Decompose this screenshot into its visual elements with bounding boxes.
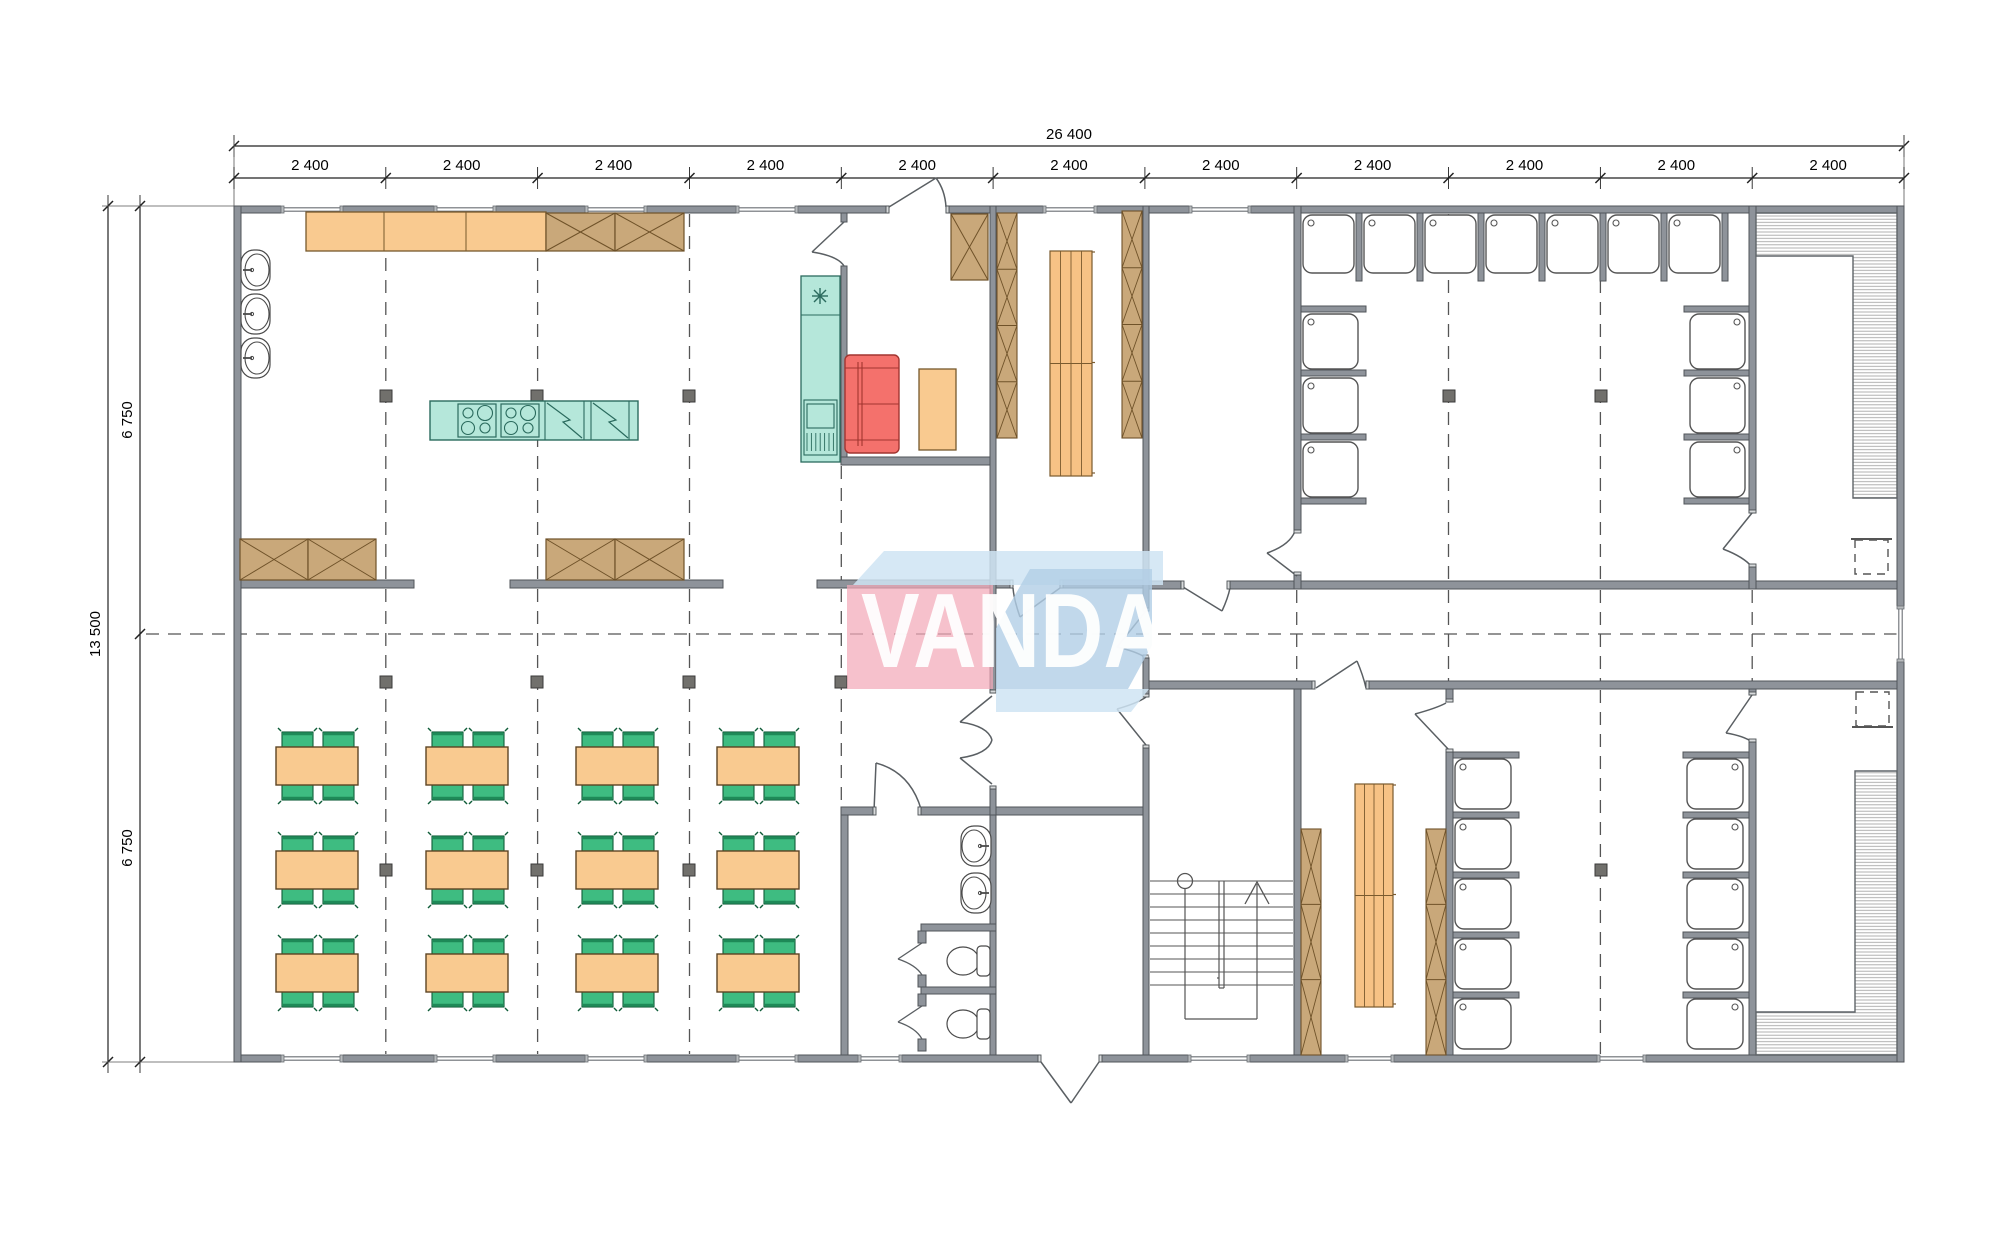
svg-text:2 400: 2 400	[443, 157, 481, 174]
svg-text:2 400: 2 400	[1658, 157, 1696, 174]
svg-text:2 400: 2 400	[747, 157, 785, 174]
svg-text:2 400: 2 400	[1506, 157, 1544, 174]
svg-text:2 400: 2 400	[1809, 157, 1847, 174]
svg-text:13 500: 13 500	[87, 611, 104, 657]
svg-text:VANDA: VANDA	[861, 572, 1167, 690]
svg-text:2 400: 2 400	[1050, 157, 1088, 174]
svg-text:6 750: 6 750	[119, 829, 136, 867]
svg-text:2 400: 2 400	[1354, 157, 1392, 174]
svg-text:2 400: 2 400	[595, 157, 633, 174]
svg-text:2 400: 2 400	[1202, 157, 1240, 174]
svg-text:26 400: 26 400	[1046, 126, 1092, 143]
svg-text:2 400: 2 400	[291, 157, 329, 174]
svg-text:2 400: 2 400	[898, 157, 936, 174]
svg-text:6 750: 6 750	[119, 401, 136, 439]
